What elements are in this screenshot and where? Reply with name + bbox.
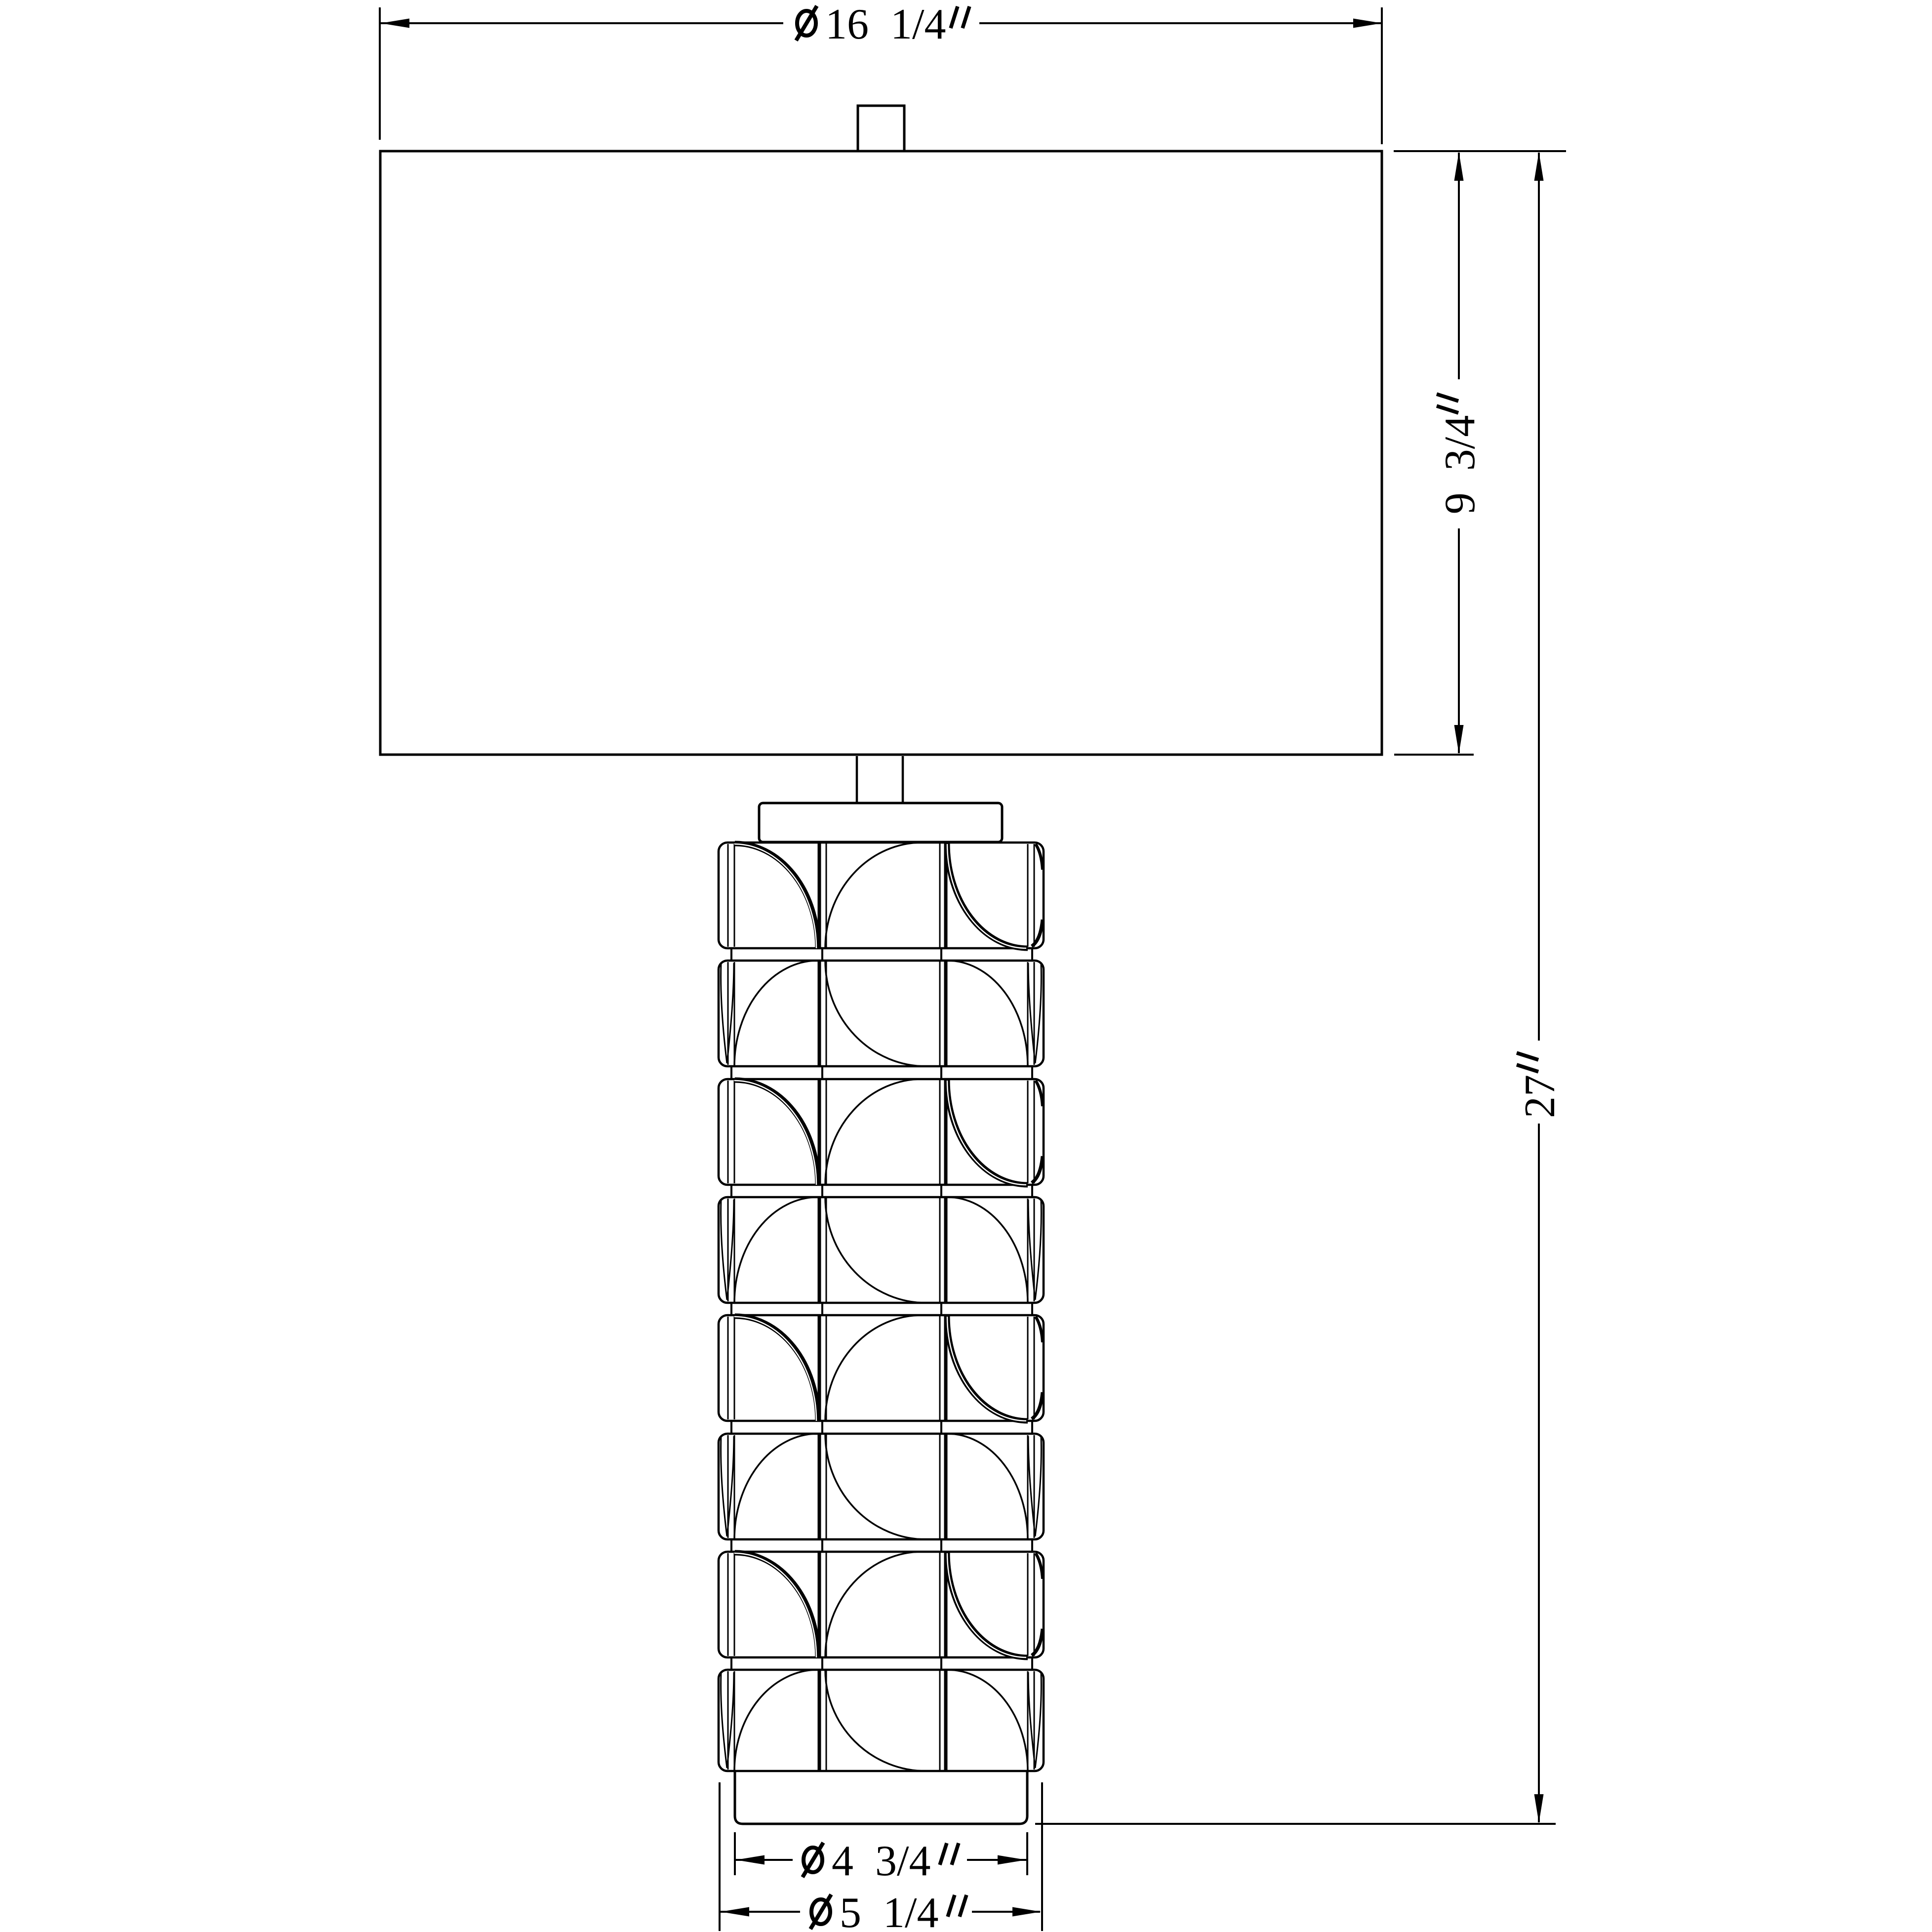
svg-text:4 3/4: 4 3/4 [832,1837,930,1885]
svg-text:27: 27 [1516,1075,1564,1118]
svg-text:16 1/4: 16 1/4 [825,0,946,48]
svg-text:5 1/4: 5 1/4 [840,1889,938,1932]
svg-text:9 3/4: 9 3/4 [1436,415,1484,514]
